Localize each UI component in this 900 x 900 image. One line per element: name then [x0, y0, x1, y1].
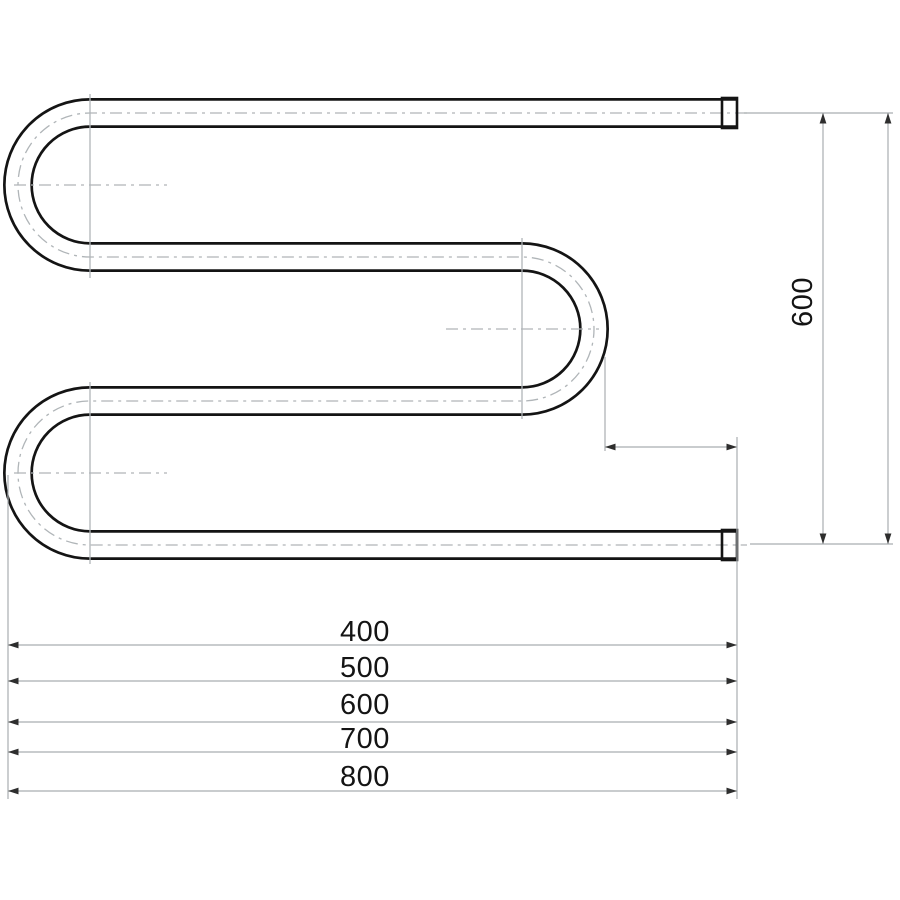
width-dimension-label-600: 600 [340, 689, 390, 721]
drawing-background [0, 0, 900, 900]
drawing-canvas: 600 400 500 600 700 800 [0, 0, 900, 900]
width-dimension-label-500: 500 [340, 652, 390, 684]
towel-rail-technical-drawing: 600 400 500 600 700 800 [0, 0, 900, 900]
width-dimension-label-700: 700 [340, 723, 390, 755]
width-dimension-label-800: 800 [340, 761, 390, 793]
width-dimension-label-400: 400 [340, 616, 390, 648]
height-dimension-label: 600 [787, 277, 819, 327]
